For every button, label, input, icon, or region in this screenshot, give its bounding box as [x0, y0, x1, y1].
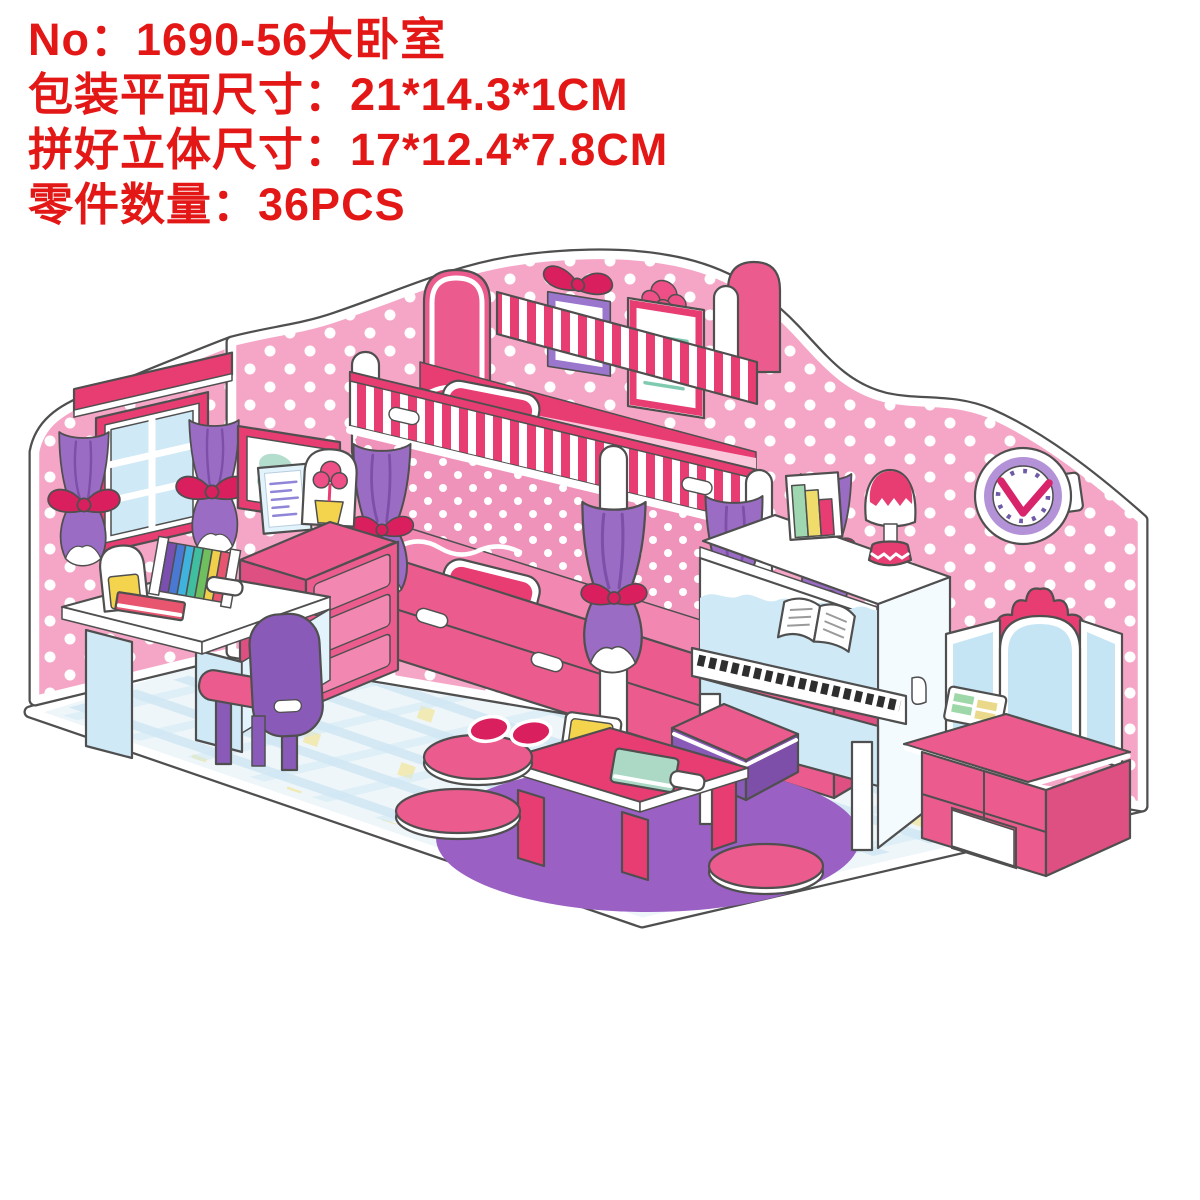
assembled-size-line: 拼好立体尺寸：17*12.4*7.8CM [28, 122, 668, 177]
flower-frame [302, 448, 358, 527]
cushion [709, 844, 823, 894]
piano-leg [852, 742, 872, 850]
product-info: No：1690-56大卧室 包装平面尺寸：21*14.3*1CM 拼好立体尺寸：… [28, 12, 668, 232]
chair-leg [216, 698, 231, 764]
clock-face [993, 466, 1053, 526]
flower-pot [314, 501, 343, 524]
desk-leg [86, 630, 132, 758]
product-model-line: No：1690-56大卧室 [28, 12, 668, 67]
table-leg [518, 790, 544, 866]
cushion [396, 789, 520, 839]
parts-count-line: 零件数量：36PCS [28, 177, 668, 232]
table-leg [622, 812, 648, 880]
chair-handle [274, 699, 302, 712]
piano-books [786, 472, 842, 539]
piano-lamp [865, 470, 915, 565]
window [48, 353, 248, 566]
package-size-line: 包装平面尺寸：21*14.3*1CM [28, 67, 668, 122]
product-image: No：1690-56大卧室 包装平面尺寸：21*14.3*1CM 拼好立体尺寸：… [0, 0, 1200, 1200]
table-leg [712, 780, 736, 850]
